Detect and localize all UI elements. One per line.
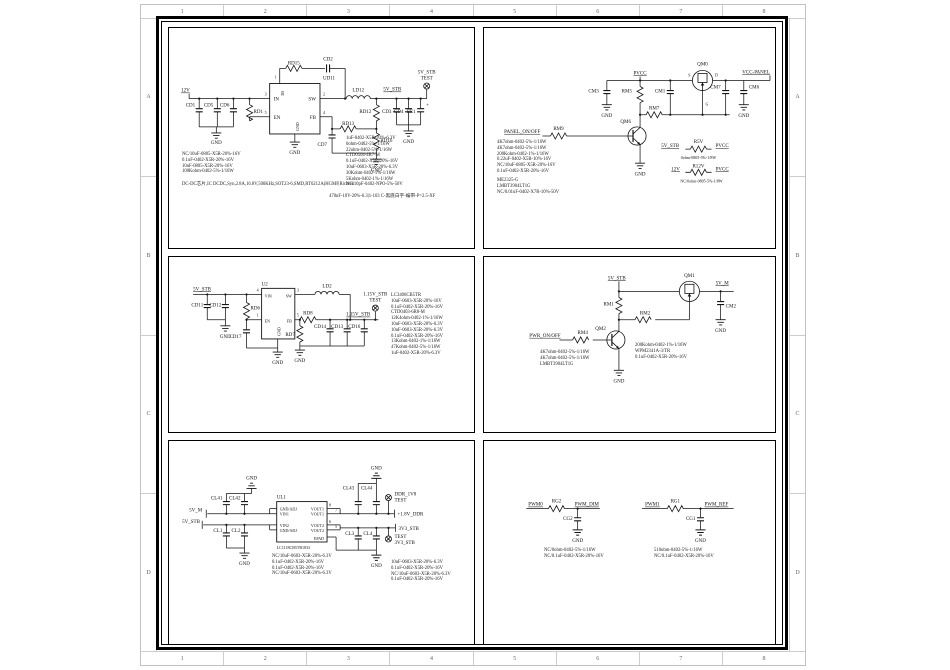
- net-label: 5V_M: [189, 508, 203, 514]
- net-label: DDR_1V8: [394, 492, 416, 498]
- refdes: CG2: [563, 516, 573, 522]
- zone-label: D: [790, 494, 805, 652]
- wires: [526, 509, 733, 530]
- pin-label: GND/ADJ: [280, 528, 298, 533]
- refdes: CD3: [382, 110, 392, 115]
- capacitor-plates: [574, 518, 704, 521]
- pin-number: 1: [275, 74, 277, 79]
- pin-number: 5: [265, 110, 267, 115]
- net-label: PVCC: [716, 143, 730, 149]
- pin-label: FB: [310, 116, 317, 121]
- net-label: 3V3_STB: [399, 526, 420, 532]
- refdes: CM2: [726, 304, 737, 310]
- refdes: CL44: [361, 485, 373, 491]
- pin-label: VIN: [265, 293, 272, 298]
- refdes: CD17: [229, 334, 241, 340]
- gnd-label: GND: [289, 151, 300, 156]
- net-label: PWM_REF: [705, 502, 729, 508]
- testpoint-icon: [372, 305, 378, 311]
- refdes: R5V: [694, 139, 704, 145]
- pin-label: D: [715, 72, 718, 77]
- bom-text: NC/10uF-0805-X5R-20%-16V0.1uF-0402-X5R-2…: [182, 152, 241, 175]
- bom-text: 0ohm-0805-5%-1/8W: [681, 155, 717, 160]
- gnd-label: GND: [738, 113, 749, 119]
- test-label: TEST: [394, 498, 406, 504]
- ground-icon: [573, 530, 583, 535]
- refdes: CG1: [686, 516, 696, 522]
- ground-icon: [273, 352, 283, 357]
- refdes: RG1: [671, 499, 681, 505]
- refdes: R12V: [692, 163, 704, 169]
- part-number: LC1118CB5TR1833: [277, 545, 310, 550]
- schematic-sheet-page: 1 2 3 4 5 6 7 8 1 2 3 4 5 6 7 8 A B C D …: [0, 0, 950, 670]
- schematic-block-panel-power: PVCC VCC-PANEL PANEL_ON/OFF CM3 RM5 CM1 …: [483, 27, 776, 249]
- pin-number: 3: [265, 92, 267, 97]
- pin-label: EPAD: [314, 536, 324, 541]
- zone-label: 4: [390, 652, 473, 665]
- net-label: 3V3_STB: [394, 540, 415, 546]
- polarity-plus: +: [426, 104, 429, 109]
- pin-label: EN: [265, 319, 270, 324]
- gnd-label: GND: [371, 465, 382, 471]
- test-label: TEST: [394, 534, 406, 540]
- refdes: CD12: [209, 303, 221, 309]
- zone-ruler-right: A B C D: [789, 18, 805, 652]
- zone-label: B: [141, 177, 156, 336]
- refdes: CD1: [186, 104, 196, 109]
- refdes: U2: [262, 281, 269, 287]
- gnd-label: GND: [220, 334, 231, 340]
- refdes: RM5: [622, 89, 633, 95]
- ground-icon: [614, 370, 624, 375]
- test-label: TEST: [369, 297, 381, 303]
- refdes: RD1: [254, 110, 264, 115]
- testpoint-icon: [424, 83, 430, 89]
- pin-number: 3: [297, 287, 299, 292]
- ground-icon: [716, 320, 726, 325]
- gnd-label: GND: [403, 140, 414, 145]
- refdes: RM9: [553, 126, 564, 132]
- zone-label: C: [790, 336, 805, 495]
- pin-label: VOUT1: [311, 512, 324, 517]
- pin-label: GND: [295, 122, 300, 131]
- capacitor-plates: [717, 302, 724, 305]
- pin-label: SW: [286, 293, 292, 298]
- refdes: CL1: [213, 528, 222, 534]
- refdes: CD2: [323, 57, 333, 62]
- refdes: UL1: [277, 495, 287, 501]
- ground-icon: [404, 131, 414, 136]
- resistor-icon: [548, 506, 564, 512]
- gnd-label: GND: [695, 538, 706, 544]
- refdes: RG2: [552, 499, 562, 505]
- pin-label: SW: [308, 98, 316, 103]
- refdes: RM7: [649, 106, 660, 112]
- refdes: CD4: [394, 110, 404, 115]
- zone-label: D: [141, 494, 156, 652]
- resistor-icon: [637, 87, 643, 103]
- bom-text: 1uF-0402-X5R-20%-6.3V0ohm-0402-5%-1/16W2…: [346, 136, 403, 188]
- gnd-label: GND: [294, 358, 305, 364]
- bom-text: 510ohm-0402-5%-1/16WNC/0.1uF-0402-X5R-20…: [654, 548, 714, 560]
- net-label: 1.15V_STB: [346, 312, 371, 318]
- gnd-label: GND: [246, 475, 257, 481]
- ground-icon: [371, 473, 381, 478]
- gnd-label: GND: [613, 378, 624, 384]
- refdes: CD13: [331, 324, 343, 330]
- ground-icon: [247, 483, 257, 488]
- gnd-label: GND: [371, 563, 382, 569]
- schematic-block-ldo: UL1 LC1118CB5TR1833 GND/ADJ VIN1 VIN2 GN…: [168, 440, 475, 645]
- testpoint-icon: [385, 495, 391, 501]
- zone-ruler-left: A B C D: [141, 18, 157, 652]
- refdes: RD8: [303, 311, 313, 317]
- pin-number: 7: [335, 508, 337, 513]
- capacitor-plates: [223, 502, 380, 539]
- inductor-icon: [346, 96, 370, 99]
- resistor-icon: [243, 303, 249, 319]
- refdes: CL3: [345, 531, 354, 537]
- schematic-block-5vm-switch: 5V_STB RM1 QM1 5V_M RM2 QM2 RM4 PWR_ON/O…: [483, 256, 776, 433]
- refdes: LD2: [322, 283, 332, 289]
- net-label: PVCC: [716, 166, 730, 172]
- net-label: 12V: [181, 89, 190, 94]
- pin-number: 2: [323, 92, 325, 97]
- net-label: PVCC: [634, 70, 648, 76]
- resistor-icon: [373, 105, 379, 121]
- schematic-block-pwm-filters: PWM0 RG2 PWM_DIM CG2 GND PWM1 RG1 PWM_RE…: [483, 440, 776, 645]
- gnd-label: GND: [211, 141, 222, 146]
- ground-icon: [295, 350, 305, 355]
- resistor-icon: [616, 297, 622, 313]
- bom-text: NC/10uF-0603-X5R-20%-6.3V0.1uF-0402-X5R-…: [272, 554, 332, 577]
- net-label: PANEL_ON/OFF: [504, 129, 540, 135]
- zone-label: C: [141, 336, 156, 495]
- zone-label: A: [141, 18, 156, 177]
- refdes: CL43: [343, 485, 355, 491]
- bom-text: 4K7ohm-0402-5%-1/16W4K7ohm-0402-5%-1/16W…: [540, 350, 589, 367]
- gnd-label: GND: [239, 561, 250, 567]
- ground-icon: [211, 133, 221, 138]
- gnd-label: GND: [715, 328, 726, 334]
- ground-icon: [239, 553, 249, 558]
- zone-label: 2: [224, 652, 307, 665]
- refdes: RM1: [604, 302, 615, 308]
- pin-number: 5: [335, 524, 337, 529]
- zone-label: 6: [557, 652, 640, 665]
- refdes: RD15: [288, 61, 300, 66]
- resistor-icon: [300, 317, 316, 323]
- resistor-icon: [573, 337, 589, 343]
- net-label: 1.15V_STB: [363, 291, 388, 297]
- refdes: QM2: [595, 326, 606, 332]
- bom-text: 4K7ohm-0402-5%-1/16W4K7ohm-0402-5%-1/16W…: [497, 140, 556, 175]
- refdes: QM1: [684, 273, 695, 279]
- refdes: RM2: [640, 311, 651, 317]
- schematic-block-dcdc-5vstb: 12V CD1 CD5 CD6 RD1 UD11 IN EN SW FB BS …: [168, 27, 475, 249]
- gnd-label: GND: [272, 360, 283, 366]
- refdes: RD7: [285, 332, 295, 338]
- ground-icon: [602, 105, 612, 110]
- resistor-icon: [690, 146, 706, 152]
- net-label: 5V_STB: [608, 275, 626, 281]
- refdes: QM0: [697, 61, 708, 67]
- ground-icon: [635, 163, 645, 168]
- net-label: PWM_DIM: [575, 502, 600, 508]
- zone-ruler-bottom: 1 2 3 4 5 6 7 8: [141, 651, 805, 665]
- pin-number: 1: [257, 313, 259, 318]
- refdes: CM7: [710, 85, 721, 91]
- ground-icon: [695, 530, 705, 535]
- pin-number: 4: [323, 110, 325, 115]
- gnd-label: GND: [572, 538, 583, 544]
- ground-icon: [290, 142, 300, 147]
- bom-text: 10uF-0603-X5R-20%-6.3V0.1uF-0402-X5R-20%…: [391, 560, 451, 583]
- pin-label: IN: [274, 98, 280, 103]
- pin-label: S: [688, 72, 690, 77]
- bom-text: ME2325-GLMBT3904LT1GNC/0.01uF-0402-X7R-1…: [497, 178, 559, 195]
- pin-label: VIN1: [280, 512, 289, 517]
- net-label: 5V_M: [716, 280, 730, 286]
- refdes: CL41: [211, 496, 223, 502]
- refdes: CD14: [314, 324, 326, 330]
- pin-label: G: [706, 102, 709, 107]
- net-label: 5V_STB: [661, 143, 680, 149]
- gnd-label: GND: [601, 113, 612, 119]
- pin-number: 6: [329, 519, 331, 524]
- bom-text: LC3406CB5TR10uF-0603-X5R-20%-16V0.1uF-04…: [391, 293, 443, 357]
- pin-number: 4: [257, 287, 259, 292]
- refdes: UD11: [323, 76, 336, 81]
- net-label: 5V_STB: [418, 70, 436, 75]
- refdes: CD7: [318, 143, 328, 148]
- refdes: RD12: [359, 110, 371, 115]
- pin-label: VOUT2: [311, 528, 324, 533]
- zone-label: 8: [723, 652, 805, 665]
- refdes: QM6: [620, 119, 631, 125]
- refdes: CM3: [588, 89, 599, 95]
- refdes: CD11: [191, 303, 203, 309]
- refdes: CL2: [232, 528, 241, 534]
- zone-label: 5: [474, 652, 557, 665]
- refdes: CM6: [749, 85, 760, 91]
- refdes: RD6: [251, 306, 261, 312]
- resistor-icon: [550, 133, 566, 139]
- refdes: CL4: [363, 531, 372, 537]
- gnd-label: GND: [635, 171, 646, 177]
- pin-label: GND: [277, 327, 282, 336]
- ground-icon: [220, 326, 230, 331]
- bom-text: 200Kohm-0402-1%-1/16WWPM2341A-3/TR0.1uF-…: [635, 343, 687, 360]
- net-label: 5V_STB: [193, 286, 211, 292]
- net-label: +1.8V_DDR: [397, 512, 423, 518]
- ground-icon: [739, 105, 749, 110]
- bom-text: NC/0ohm-0402-5%-1/16WNC/0.1uF-0402-X5R-2…: [544, 548, 604, 560]
- pin-label: BS: [280, 91, 285, 96]
- test-label: TEST: [421, 76, 433, 81]
- refdes: CD16: [348, 324, 360, 330]
- resistor-icon: [690, 169, 706, 175]
- pin-label: FB: [287, 319, 292, 324]
- refdes: CM1: [655, 89, 666, 95]
- refdes: CD6: [220, 104, 230, 109]
- refdes: CL42: [229, 496, 241, 502]
- schematic-block-1v15-buck: 5V_STB CD11 CD12 RD6 CD17 U2 VIN EN SW F…: [168, 256, 475, 433]
- resistor-icon: [635, 317, 651, 323]
- net-label: VCC-PANEL: [742, 69, 770, 75]
- refdes: CD5: [204, 104, 214, 109]
- refdes: LD12: [352, 89, 364, 94]
- net-label: 5V_STB: [383, 88, 401, 93]
- testpoint-icon: [385, 536, 391, 542]
- inductor-icon: [315, 291, 339, 294]
- description-text: DC-DC芯片,IC DCDC,Syn,2.8A,16.8V,500KHz,SO…: [182, 182, 354, 188]
- mosfet-icon: [679, 281, 699, 301]
- pin-label: EN: [274, 116, 281, 121]
- ground-icon: [371, 555, 381, 560]
- net-label: PWM1: [645, 502, 660, 508]
- net-label: 5V_STB: [182, 519, 201, 525]
- net-label: 12V: [671, 166, 680, 172]
- bom-text: NC/0ohm-0805-5%-1/8W: [680, 178, 722, 183]
- pin-number: 5: [297, 313, 299, 318]
- zone-label: 7: [640, 652, 723, 665]
- resistor-icon: [297, 326, 303, 342]
- net-label: PWR_ON/OFF: [529, 333, 560, 339]
- zone-label: B: [790, 177, 805, 336]
- net-label: PWM0: [528, 502, 543, 508]
- refdes: EE1: [407, 110, 416, 115]
- zone-label: 1: [141, 652, 224, 665]
- resistor-icon: [646, 112, 662, 118]
- note-text: 470uF-10V-20%-6.3|1-103 C-黑底白字-编带-P=2.5-…: [329, 194, 435, 200]
- refdes: RD13: [342, 122, 354, 127]
- pin-number: 8: [329, 503, 331, 508]
- zone-label: 3: [307, 652, 390, 665]
- zone-label: A: [790, 18, 805, 177]
- resistor-icon: [667, 506, 683, 512]
- refdes: RM4: [578, 330, 589, 336]
